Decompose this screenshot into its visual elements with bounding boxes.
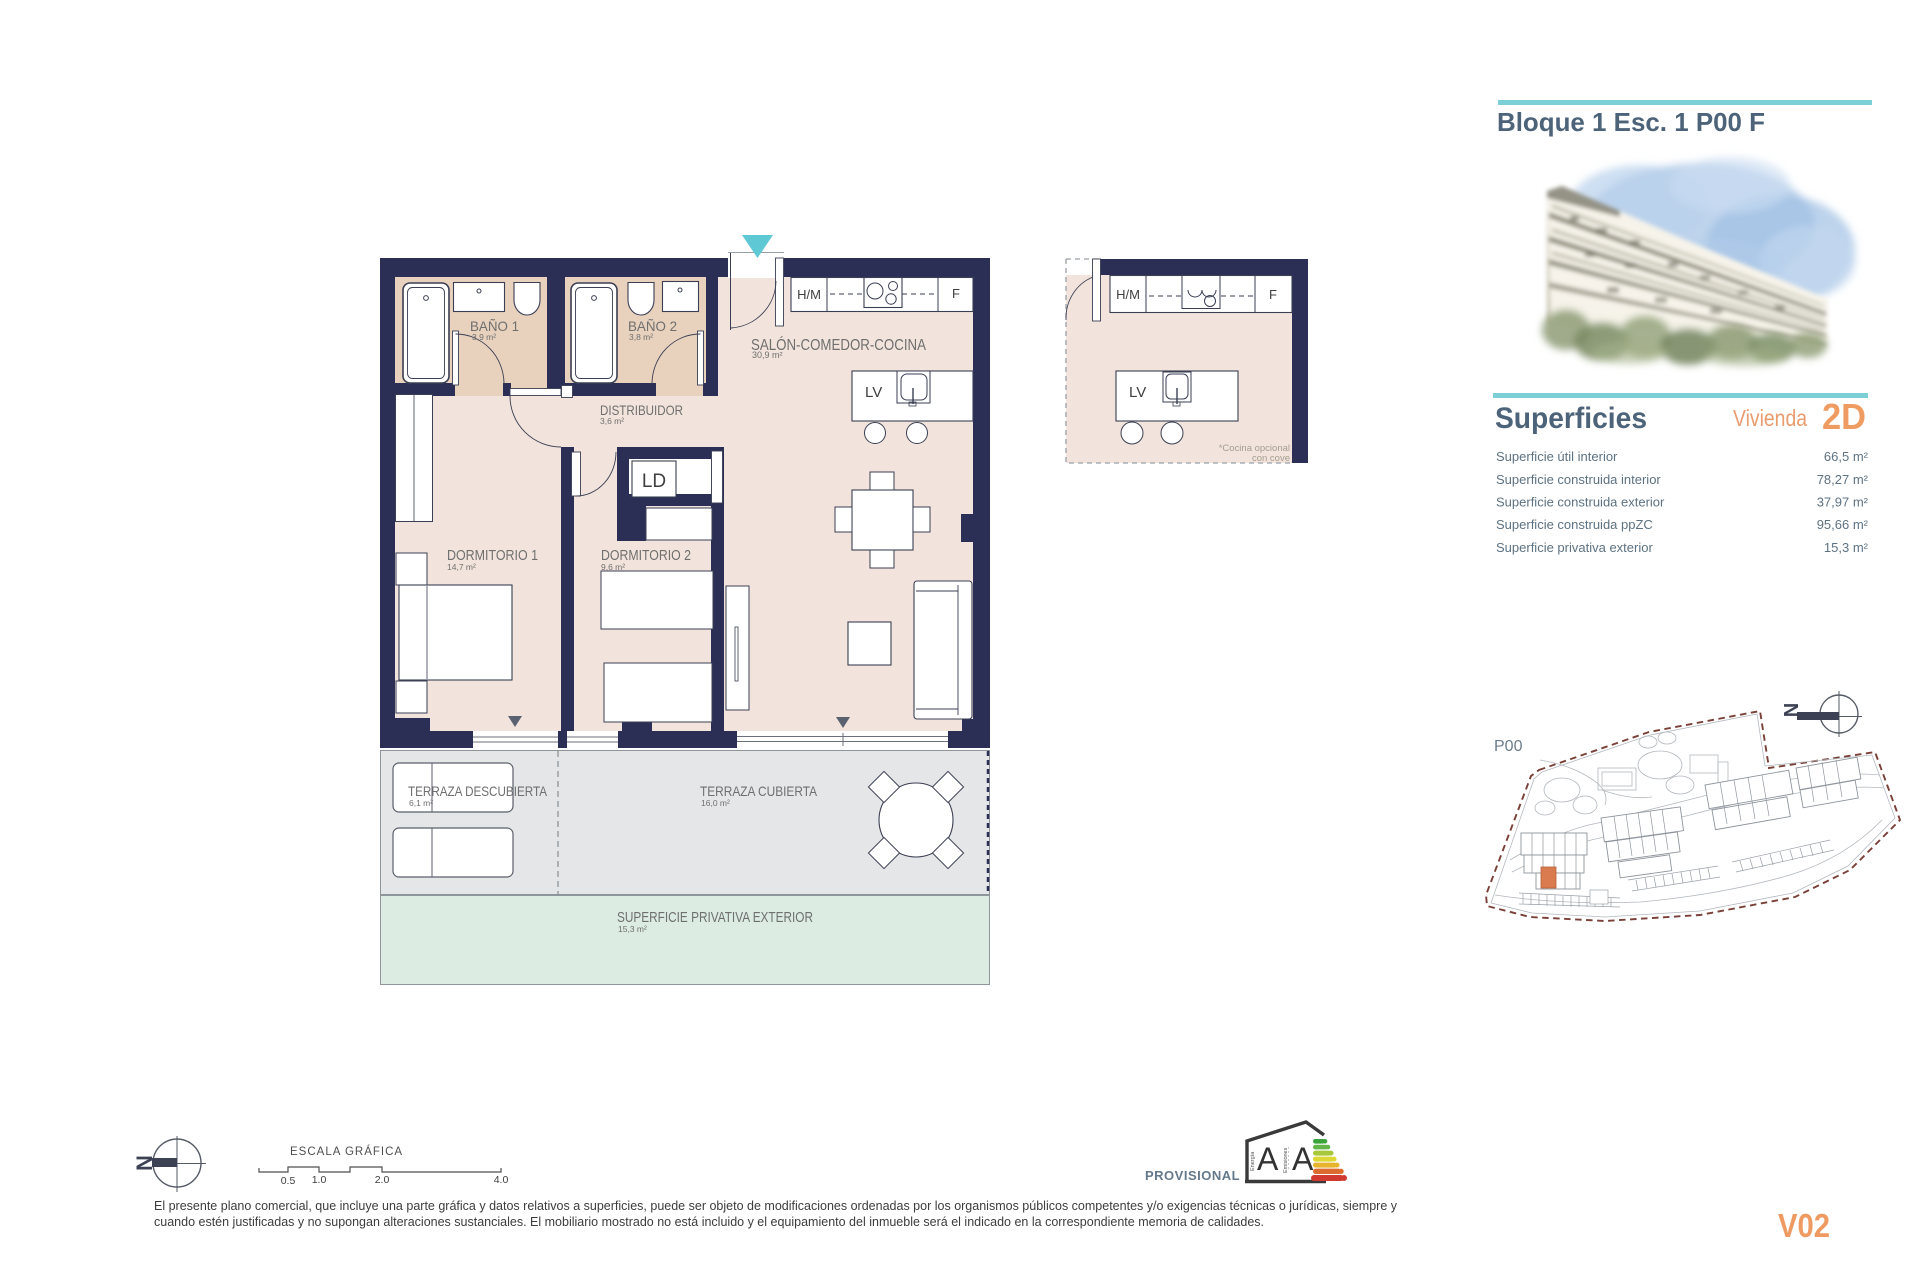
svg-text:3,9 m²: 3,9 m²: [472, 332, 496, 342]
svg-text:A: A: [1257, 1141, 1279, 1177]
svg-text:0.5: 0.5: [281, 1175, 296, 1187]
svg-text:TERRAZA CUBIERTA: TERRAZA CUBIERTA: [700, 783, 818, 799]
svg-text:Bloque 1 Esc. 1 P00 F: Bloque 1 Esc. 1 P00 F: [1497, 107, 1765, 137]
svg-text:TERRAZA DESCUBIERTA: TERRAZA DESCUBIERTA: [408, 783, 548, 799]
svg-text:2.0: 2.0: [375, 1174, 390, 1186]
svg-text:H/M: H/M: [1116, 287, 1140, 302]
svg-text:P00: P00: [1494, 738, 1523, 755]
svg-text:N: N: [132, 1155, 157, 1171]
svg-text:con cove: con cove: [1252, 453, 1290, 464]
svg-text:A: A: [1292, 1141, 1314, 1177]
svg-text:F: F: [952, 286, 960, 301]
svg-text:N: N: [1781, 703, 1803, 717]
svg-text:V02: V02: [1778, 1207, 1830, 1244]
svg-text:cuando estén justificadas y no: cuando estén justificadas y no supongan …: [154, 1215, 1264, 1229]
svg-text:15,3 m²: 15,3 m²: [1824, 540, 1869, 555]
svg-text:37,97 m²: 37,97 m²: [1817, 495, 1869, 510]
svg-text:15,3 m²: 15,3 m²: [618, 924, 647, 934]
svg-text:ESCALA GRÁFICA: ESCALA GRÁFICA: [290, 1145, 403, 1158]
svg-text:H/M: H/M: [797, 287, 821, 302]
svg-text:1.0: 1.0: [312, 1174, 327, 1186]
svg-text:LD: LD: [642, 471, 666, 492]
svg-text:Superficie construida exterior: Superficie construida exterior: [1496, 495, 1665, 510]
svg-text:Vivienda: Vivienda: [1733, 405, 1807, 431]
svg-text:4.0: 4.0: [494, 1174, 509, 1186]
svg-text:3,6 m²: 3,6 m²: [600, 416, 624, 426]
svg-text:78,27 m²: 78,27 m²: [1817, 472, 1869, 487]
svg-text:66,5 m²: 66,5 m²: [1824, 449, 1869, 464]
svg-text:Energía: Energía: [1250, 1151, 1256, 1171]
svg-text:Superficie construida ppZC: Superficie construida ppZC: [1496, 517, 1653, 532]
svg-text:6,1 m²: 6,1 m²: [409, 798, 433, 808]
svg-text:9,6 m²: 9,6 m²: [601, 562, 625, 572]
svg-text:Superficie construida interior: Superficie construida interior: [1496, 472, 1661, 487]
svg-text:Superficie privativa exterior: Superficie privativa exterior: [1496, 540, 1653, 555]
svg-text:2D: 2D: [1822, 396, 1866, 437]
svg-text:LV: LV: [865, 384, 882, 401]
svg-text:Superficies: Superficies: [1495, 402, 1647, 435]
svg-text:95,66 m²: 95,66 m²: [1817, 517, 1869, 532]
svg-text:F: F: [1269, 287, 1277, 302]
svg-text:3,8 m²: 3,8 m²: [629, 332, 653, 342]
svg-text:16,0 m²: 16,0 m²: [701, 798, 730, 808]
svg-text:14,7 m²: 14,7 m²: [447, 562, 476, 572]
svg-text:El presente plano comercial, q: El presente plano comercial, que incluye…: [154, 1199, 1398, 1213]
svg-text:LV: LV: [1129, 384, 1146, 401]
svg-text:PROVISIONAL: PROVISIONAL: [1145, 1168, 1240, 1183]
svg-text:Superficie útil interior: Superficie útil interior: [1496, 449, 1618, 464]
svg-text:30,9 m²: 30,9 m²: [752, 350, 783, 360]
